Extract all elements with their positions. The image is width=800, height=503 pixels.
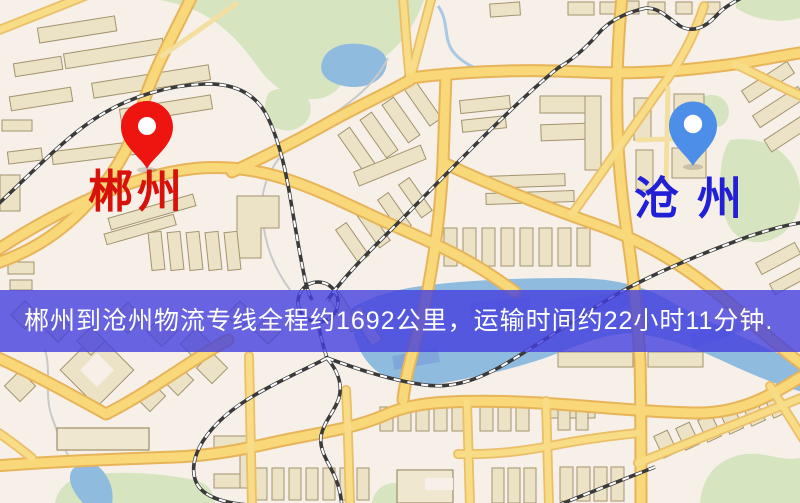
route-info-text: 郴州到沧州物流专线全程约1692公里，运输时间约22小时11分钟.: [24, 307, 773, 335]
map-screenshot: 郴州 沧州 郴州到沧州物流专线全程约1692公里，运输时间约22小时11分钟.: [0, 0, 800, 503]
route-info-banner: 郴州到沧州物流专线全程约1692公里，运输时间约22小时11分钟.: [0, 290, 800, 352]
map-canvas[interactable]: [0, 0, 800, 503]
origin-city-label: 郴州: [88, 169, 186, 214]
destination-city-label: 沧州: [634, 176, 760, 221]
